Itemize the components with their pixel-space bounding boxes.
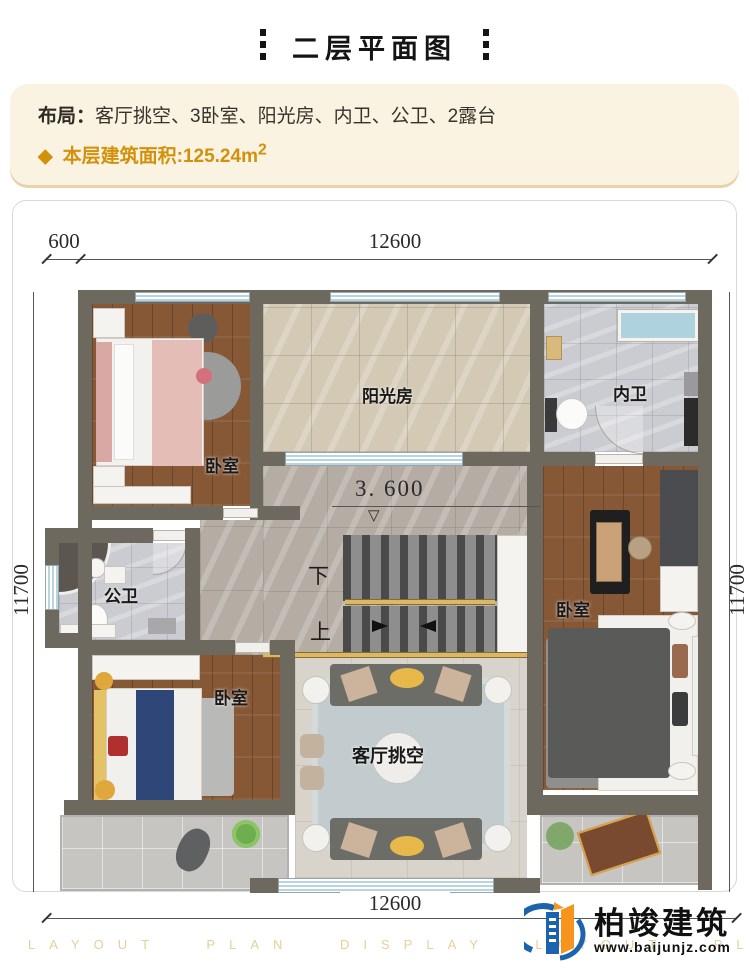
title-left-dash-icon: [260, 29, 266, 63]
stair-arrow-icon: [420, 620, 436, 632]
vanity: [546, 336, 562, 360]
pillow: [672, 644, 688, 678]
bedroom-bl-label: 卧室: [214, 684, 248, 709]
stool: [95, 780, 115, 800]
dresser: [93, 486, 191, 504]
dim-line-top: [45, 259, 713, 260]
cushion: [108, 736, 128, 756]
door: [223, 508, 258, 518]
living-void-label: 客厅挑空: [352, 742, 424, 768]
wall: [78, 506, 223, 520]
wall: [263, 452, 285, 466]
title-right-dash-icon: [483, 29, 489, 63]
wall: [45, 633, 92, 648]
sunroom-floor: [263, 304, 530, 452]
layout-label: 布局：: [38, 106, 95, 127]
void-rail: [263, 652, 540, 658]
wall: [527, 466, 543, 815]
door: [235, 642, 270, 653]
wall: [64, 800, 295, 815]
window: [135, 292, 250, 302]
dim-line-left: [33, 292, 34, 892]
bath-window: [45, 565, 59, 610]
wall: [530, 452, 595, 466]
bathtub: [618, 310, 698, 341]
blanket: [136, 690, 174, 802]
toilet: [556, 398, 588, 430]
bedroom-tl-label: 卧室: [205, 452, 239, 477]
wall: [92, 528, 153, 543]
nightstand: [668, 612, 696, 630]
nightstand: [668, 762, 696, 780]
pillow: [114, 344, 134, 460]
wardrobe: [660, 470, 698, 566]
sofa-pillow: [390, 668, 424, 688]
elevation-triangle-icon: ▽: [368, 506, 380, 525]
wall: [643, 452, 712, 466]
window: [330, 292, 500, 302]
brand-logo: 柏竣建筑 www.baijunjz.com: [524, 892, 746, 970]
wall: [270, 640, 295, 655]
area-value: 125.24m: [183, 146, 258, 167]
dim-top-main: 12600: [340, 229, 450, 254]
nightstand: [93, 308, 125, 338]
elevation-line: [332, 506, 540, 507]
plant: [232, 820, 260, 848]
page-header: 二层平面图: [0, 24, 749, 68]
area-label: 本层建筑面积:: [63, 146, 183, 167]
desk: [596, 522, 622, 582]
side-table: [484, 824, 512, 852]
dim-top-small: 600: [36, 229, 92, 254]
brand-building-icon: [524, 898, 586, 964]
wall: [463, 452, 530, 466]
wall: [250, 304, 263, 520]
wall: [92, 640, 235, 655]
side-table: [302, 824, 330, 852]
dim-bottom: 12600: [340, 891, 450, 916]
sofa-pillow: [390, 836, 424, 856]
stair-arrow-icon: [372, 620, 388, 632]
public-bath-label: 公卫: [104, 582, 138, 607]
brand-website: www.baijunjz.com: [594, 939, 731, 955]
page-title: 二层平面图: [292, 27, 457, 66]
cushion: [196, 368, 212, 384]
wall: [78, 304, 92, 815]
brand-name: 柏竣建筑: [594, 908, 730, 939]
layout-value: 客厅挑空、3卧室、阳光房、内卫、公卫、2露台: [95, 106, 496, 127]
cabinet: [684, 398, 698, 446]
stair-flight-upper: [343, 535, 497, 601]
wall: [527, 795, 712, 815]
wall: [250, 878, 278, 893]
cabinet: [660, 566, 698, 612]
plant: [546, 822, 574, 850]
stair-rail: [345, 599, 495, 605]
wall: [185, 528, 200, 655]
door: [153, 530, 187, 541]
stair-up-label: 上: [310, 616, 331, 646]
pillow: [96, 342, 112, 462]
blanket: [548, 628, 670, 778]
dim-right: 11700: [725, 545, 747, 635]
diamond-icon: ◆: [38, 145, 53, 168]
pouf: [300, 766, 324, 790]
bedroom-r-label: 卧室: [556, 596, 590, 621]
info-box: [10, 84, 739, 185]
wall: [280, 655, 295, 815]
pillow: [672, 692, 688, 726]
chair: [628, 536, 652, 560]
stool: [95, 672, 113, 690]
wall: [258, 506, 300, 520]
area-sup: 2: [258, 142, 267, 159]
stair-down-label: 下: [308, 560, 329, 590]
wall: [530, 290, 544, 466]
wall: [494, 878, 540, 893]
pouf: [300, 734, 324, 758]
bath-mat: [148, 618, 176, 634]
area-line: ◆本层建筑面积:125.24m2: [38, 141, 698, 168]
side-table: [484, 676, 512, 704]
sunroom-label: 阳光房: [362, 382, 413, 407]
ensuite-label: 内卫: [613, 380, 647, 405]
layout-line: 布局：客厅挑空、3卧室、阳光房、内卫、公卫、2露台: [38, 101, 698, 128]
hall-corridor-floor: [200, 520, 263, 655]
blanket: [152, 340, 202, 466]
door: [595, 454, 643, 464]
elevation-label: 3. 600: [355, 476, 475, 502]
dim-left: 11700: [9, 545, 31, 635]
window: [548, 292, 686, 302]
sunroom-window: [285, 452, 463, 466]
shelf: [684, 372, 698, 396]
side-table: [302, 676, 330, 704]
stair-landing: [497, 535, 530, 656]
